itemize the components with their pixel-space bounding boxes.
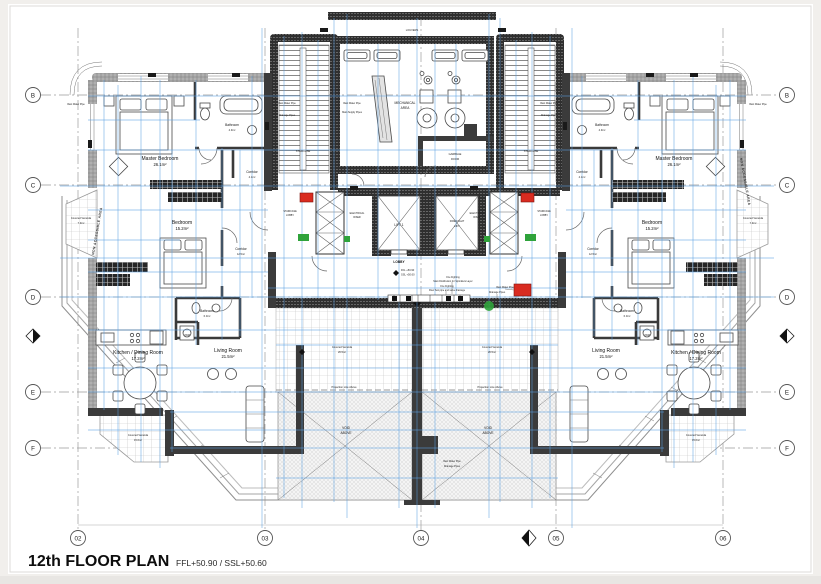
grid-col-label: 06 bbox=[720, 535, 727, 542]
lobby-ssl: SSL +50.60 bbox=[401, 273, 415, 277]
rain-water-pipe-note: Rain Water Pipe bbox=[343, 102, 361, 105]
room-label: Bathroom bbox=[595, 123, 609, 127]
fire-sprinkler-note: Fire Fighting bbox=[446, 276, 460, 279]
void-above-note: ABOVE bbox=[483, 431, 494, 435]
room-label: JWM bbox=[184, 333, 190, 337]
room-area: 4.9m² bbox=[229, 128, 236, 132]
room-area: 4.1m² bbox=[249, 175, 256, 179]
wardrobe bbox=[96, 274, 130, 286]
room-label: Bathroom bbox=[620, 309, 634, 313]
fire-flowtest-note: Fire Fighting bbox=[440, 285, 454, 288]
sprinkler-manifold bbox=[388, 295, 470, 302]
louvers-label: LOUVERS bbox=[406, 28, 419, 32]
rain-water-pipe-note: Rain Water Pipe bbox=[540, 102, 558, 105]
room-area: 26.1m² bbox=[667, 162, 681, 167]
room-label: Corridor bbox=[576, 170, 588, 174]
garbage-room-label: GARBAGE bbox=[449, 152, 462, 156]
floor-plan-drawing: B C D E F B C D E F 02 03 04 05 06 bbox=[0, 0, 821, 584]
room-area: 21.5m² bbox=[599, 354, 613, 359]
wardrobe bbox=[168, 192, 222, 202]
room-label: Covered Veranda bbox=[128, 433, 149, 437]
exit-sign-small-left bbox=[344, 236, 350, 242]
room-label: Covered Veranda bbox=[332, 345, 353, 349]
room-area: 21.5m² bbox=[221, 354, 235, 359]
room-label: Covered Veranda bbox=[482, 345, 503, 349]
staircase-lobby-label: LOBBY bbox=[540, 214, 548, 217]
drainage-pipes-note: Drainage Pipes bbox=[444, 465, 461, 468]
sheet-levels: FFL+50.90 / SSL+50.60 bbox=[176, 558, 267, 568]
grid-row-label: D bbox=[31, 294, 36, 301]
mechanical-area-label: MECHANICAL bbox=[395, 101, 416, 105]
room-area: 15.2m² bbox=[175, 226, 189, 231]
bottom-strip bbox=[0, 576, 821, 584]
fire-sprinkler-note: Main Distribution for Sprinklers Layer bbox=[433, 280, 472, 283]
room-area: 26.1m² bbox=[153, 162, 167, 167]
fire-hose-cabinet-left bbox=[300, 193, 313, 202]
rain-water-pipe-note: Rain Water Pipe bbox=[443, 460, 461, 463]
electrical-riser-label: RISER bbox=[473, 216, 481, 219]
fire-flowtest-note: Flow Test pipe and valve drainage bbox=[429, 289, 466, 292]
rain-water-pipe-note: Rain Water Pipe bbox=[278, 102, 296, 105]
room-label: Corridor bbox=[246, 170, 258, 174]
lift-2-label: LIFT bbox=[454, 224, 460, 228]
room-area: 7.9m² bbox=[78, 221, 85, 225]
lobby-ffl: FFL +50.90 bbox=[401, 268, 415, 272]
staircase-lobby-label: LOBBY bbox=[286, 214, 294, 217]
mechanical-area-label: AREA bbox=[401, 106, 411, 110]
room-label: Corridor bbox=[587, 247, 599, 251]
room-label: Covered Veranda bbox=[71, 216, 92, 220]
wardrobe bbox=[150, 180, 222, 189]
room-area: 15.6m² bbox=[134, 438, 142, 442]
room-label: Bathroom bbox=[200, 309, 214, 313]
lift-2-label: FIRE FIGHT bbox=[450, 219, 465, 223]
wardrobe bbox=[612, 192, 666, 202]
void-above-note: VOID bbox=[484, 426, 492, 430]
projection-line-note: Projection Line Above bbox=[331, 385, 357, 389]
room-area: 4.1m² bbox=[579, 175, 586, 179]
room-area: 17.2m² bbox=[689, 356, 703, 361]
room-label: Corridor bbox=[235, 247, 247, 251]
lobby-label: LOBBY bbox=[393, 260, 405, 264]
rain-water-pipe-note: Rain Water Pipe bbox=[749, 103, 767, 106]
grid-row-label: E bbox=[785, 389, 789, 396]
sheet-title: 12th FLOOR PLAN bbox=[28, 553, 169, 570]
garbage-room-label: ROOM bbox=[451, 157, 459, 161]
room-area: 12.5m² bbox=[237, 252, 245, 256]
grid-row-label: E bbox=[31, 389, 35, 396]
exit-sign-small-right bbox=[484, 236, 490, 242]
grid-col-label: 04 bbox=[418, 535, 425, 542]
drainage-pipes-note: Drainage Pipes bbox=[489, 291, 506, 294]
fire-cabinet-lobby bbox=[514, 284, 531, 296]
room-area: 15.2m² bbox=[645, 226, 659, 231]
room-label: Covered Veranda bbox=[686, 433, 707, 437]
room-area: 7.9m² bbox=[750, 221, 757, 225]
staircase-label: STAIRCASE bbox=[296, 149, 311, 153]
grid-row-label: C bbox=[785, 182, 790, 189]
grid-col-label: 05 bbox=[553, 535, 560, 542]
grid-row-label: B bbox=[785, 92, 789, 99]
electrical-riser-label: ELECTRICAL bbox=[350, 212, 365, 215]
room-area: 17.2m² bbox=[131, 356, 145, 361]
lift-1-label: LIFT 1 bbox=[394, 223, 403, 227]
void-above-note: ABOVE bbox=[341, 431, 352, 435]
fire-hose-cabinet-right bbox=[521, 193, 534, 202]
projection-line-note: Projection Line Above bbox=[477, 385, 503, 389]
room-label: Covered Veranda bbox=[743, 216, 764, 220]
room-area: 6.0m² bbox=[624, 314, 631, 318]
room-area: 12.5m² bbox=[589, 252, 597, 256]
room-area: 6.0m² bbox=[204, 314, 211, 318]
grid-col-label: 02 bbox=[75, 535, 82, 542]
louver-strip bbox=[328, 12, 496, 20]
room-area: 26.5m² bbox=[488, 350, 496, 354]
drawing-sheet: B C D E F B C D E F 02 03 04 05 06 bbox=[0, 0, 821, 584]
wardrobe bbox=[612, 180, 684, 189]
rain-water-pipe-note: Rain Water Pipe bbox=[496, 286, 514, 289]
grid-row-label: F bbox=[785, 445, 789, 452]
wardrobe bbox=[704, 274, 738, 286]
staircase-lobby-label: STAIRCASE bbox=[537, 210, 551, 213]
grid-row-label: D bbox=[785, 294, 790, 301]
room-area: 15.6m² bbox=[692, 438, 700, 442]
main-supply-pipes-note: Main Supply Pipes bbox=[342, 111, 363, 114]
electrical-riser-label: RISER bbox=[353, 216, 361, 219]
void-above-note: VOID bbox=[342, 426, 350, 430]
staircase-label: STAIRCASE bbox=[524, 149, 539, 153]
room-area: 26.5m² bbox=[338, 350, 346, 354]
exit-sign-left bbox=[298, 234, 309, 241]
room-area: 4.9m² bbox=[599, 128, 606, 132]
grid-col-label: 03 bbox=[262, 535, 269, 542]
staircase-lobby-label: STAIRCASE bbox=[283, 210, 297, 213]
electrical-riser-label: ELECTRICAL bbox=[470, 212, 485, 215]
grid-row-label: C bbox=[31, 182, 36, 189]
grid-row-label: B bbox=[31, 92, 35, 99]
drainage-pipes-note: Drainage Pipes bbox=[279, 114, 296, 117]
rain-water-pipe-note: Rain Water Pipe bbox=[67, 103, 85, 106]
grid-row-label: F bbox=[31, 445, 35, 452]
exit-sign-right bbox=[525, 234, 536, 241]
room-label: JWM bbox=[644, 333, 650, 337]
room-label: Bathroom bbox=[225, 123, 239, 127]
plant-symbol bbox=[484, 301, 494, 311]
drainage-pipes-note: Drainage Pipes bbox=[541, 114, 558, 117]
